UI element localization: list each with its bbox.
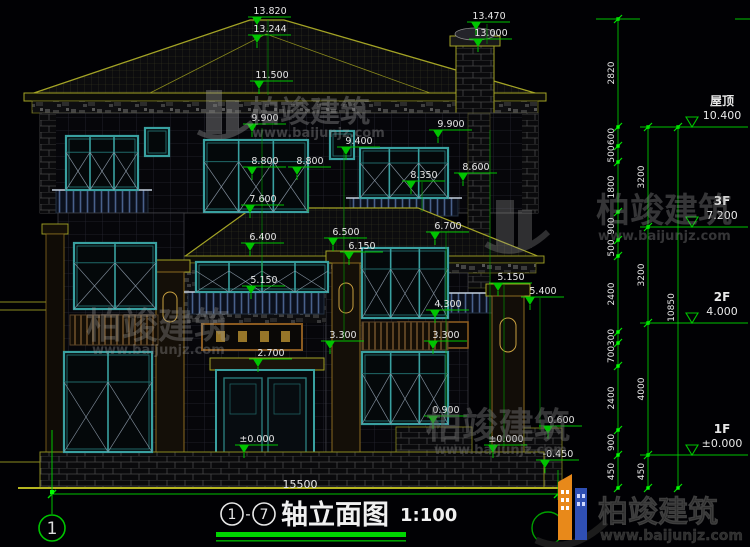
dimension-value: 450 xyxy=(637,463,647,480)
elevation-value: 8.600 xyxy=(462,162,489,173)
floor-label: 2F xyxy=(714,290,731,304)
quoin-left xyxy=(40,113,56,213)
dimension-value: 3200 xyxy=(637,165,647,188)
dimension-value: 3200 xyxy=(637,263,647,286)
floor-level: 屋顶10.400 xyxy=(640,94,748,127)
watermark-right: 柏竣建筑 www.baijunjz.com xyxy=(596,191,732,244)
elevation-value: 13.244 xyxy=(253,24,286,35)
title-underline-thin xyxy=(216,540,406,542)
elevation-value: 5.150 xyxy=(250,275,277,286)
title-axis-from: 1 xyxy=(228,507,237,523)
floor-level: 1F±0.000 xyxy=(640,422,748,455)
dimension-value: 10850 xyxy=(667,293,677,322)
dimension-value: 900 xyxy=(607,434,617,451)
elevation-value: 6.400 xyxy=(249,232,276,243)
watermark-brand: 柏竣建筑 xyxy=(86,306,230,347)
title-scale: 1:100 xyxy=(400,505,457,526)
watermark-bottom: 柏竣建筑 www.baijunjz.com xyxy=(426,406,570,458)
dimension-chain: 2820600500180090050024003007002400900450 xyxy=(607,15,622,492)
watermark-url: www.baijunjz.com xyxy=(598,229,731,244)
dimension-value: 4000 xyxy=(637,377,647,400)
floor-label: 屋顶 xyxy=(710,94,734,108)
elevation-value: 3.300 xyxy=(432,330,459,341)
cad-canvas: 13.82013.24413.47013.00011.5009.9009.900… xyxy=(0,0,750,547)
floor-level: 2F4.000 xyxy=(640,290,748,323)
elevation-value: ±0.000 xyxy=(239,434,274,445)
elevation-value: 8.800 xyxy=(296,156,323,167)
watermark-url: www.baijunjz.com xyxy=(252,126,385,141)
watermark-brand: 柏竣建筑 xyxy=(426,406,570,447)
elevation-value: 6.150 xyxy=(348,241,375,252)
elevation-value: 8.800 xyxy=(251,156,278,167)
door-head-trim xyxy=(210,358,324,370)
logo-url: www.baijunjz.com xyxy=(600,528,743,544)
elevation-value: 5.150 xyxy=(497,272,524,283)
dimension-value: 2400 xyxy=(607,386,617,409)
floor-elevation: ±0.000 xyxy=(702,437,743,450)
watermark-url: www.baijunjz.com xyxy=(92,343,225,358)
watermark-left: 柏竣建筑 www.baijunjz.com xyxy=(86,306,230,358)
watermark-brand: 柏竣建筑 xyxy=(596,191,732,231)
elevation-value: 6.500 xyxy=(332,227,359,238)
elevation-value: 6.700 xyxy=(434,221,461,232)
title-underline-thick xyxy=(216,532,406,537)
overall-width-value: 15500 xyxy=(283,478,318,491)
floor-elevation: 10.400 xyxy=(703,109,742,122)
quoin-right xyxy=(522,113,538,213)
window xyxy=(74,243,156,309)
axis-bubble-number: 1 xyxy=(47,519,58,539)
elevation-value: 3.300 xyxy=(329,330,356,341)
title-axis-to: 7 xyxy=(260,507,269,523)
logo-brand: 柏竣建筑 xyxy=(598,495,718,530)
dimension-chains-layer: 2820600500180090050024003007002400900450… xyxy=(607,15,682,492)
title-dash: - xyxy=(245,505,250,523)
window xyxy=(66,136,138,190)
dimension-value: 2820 xyxy=(607,61,617,84)
logo-tower-blue xyxy=(575,488,587,540)
elevation-value: 5.400 xyxy=(529,286,556,297)
elevation-value: 13.470 xyxy=(472,11,505,22)
dimension-value: 450 xyxy=(607,463,617,480)
elevation-value: 8.350 xyxy=(410,170,437,181)
elevation-value: 2.700 xyxy=(257,348,284,359)
window xyxy=(145,128,169,156)
title-name: 轴立面图 xyxy=(281,499,389,531)
dimension-chain: 10850 xyxy=(667,123,682,492)
watermark-url: www.baijunjz.com xyxy=(434,443,567,458)
floor-elevation: 4.000 xyxy=(706,305,738,318)
elevation-value: 13.820 xyxy=(253,6,286,17)
floor-label: 1F xyxy=(714,422,731,436)
window xyxy=(64,352,152,452)
elevation-value: 7.600 xyxy=(249,194,276,205)
dimension-chain: 320032004000450 xyxy=(637,123,652,492)
brand-logo: 柏竣建筑 www.baijunjz.com xyxy=(532,474,743,545)
logo-tower-orange xyxy=(558,474,572,540)
watermark-brand: 柏竣建筑 xyxy=(250,95,370,130)
level-lines-layer: 屋顶10.4003F7.2002F4.0001F±0.000 xyxy=(640,94,748,455)
dimension-value: 300 xyxy=(607,329,617,346)
elevation-drawing: 13.82013.24413.47013.00011.5009.9009.900… xyxy=(0,0,750,547)
dimension-value: 700 xyxy=(607,346,617,363)
elevation-value: 9.900 xyxy=(437,119,464,130)
elevation-value: 4.300 xyxy=(434,299,461,310)
dimension-value: 2400 xyxy=(607,282,617,305)
balcony-rail-3f-left xyxy=(52,190,152,213)
elevation-value: 11.500 xyxy=(255,70,288,81)
elevation-value: 13.000 xyxy=(474,28,507,39)
drawing-title: 1 - 7 轴立面图 1:100 xyxy=(216,499,457,542)
